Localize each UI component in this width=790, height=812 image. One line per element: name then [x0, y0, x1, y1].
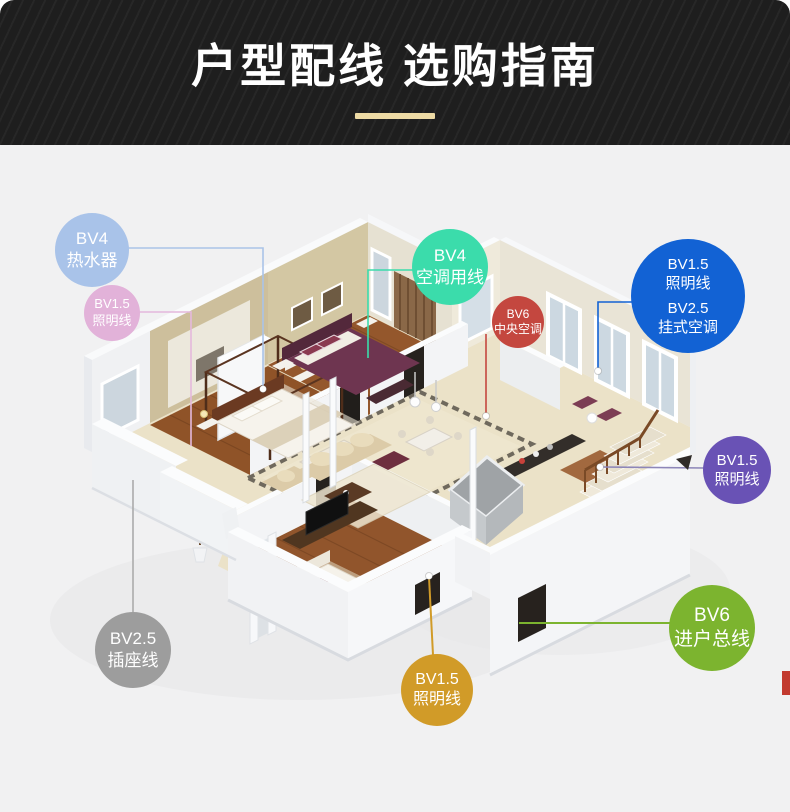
- wire-spec: BV6: [694, 604, 730, 628]
- wire-use-label: 插座线: [108, 650, 159, 672]
- badge-water-heater: BV4 热水器: [55, 213, 129, 287]
- badge-lighting-left: BV1.5 照明线: [84, 285, 140, 341]
- wire-use-label: 热水器: [67, 250, 118, 272]
- badge-wall-ac-combo: BV1.5 照明线 BV2.5 挂式空调: [631, 239, 745, 353]
- wire-use-label: 进户总线: [674, 628, 750, 652]
- wire-spec: BV1.5: [415, 670, 459, 690]
- badge-main-incoming: BV6 进户总线: [669, 585, 755, 671]
- wire-spec: BV2.5: [110, 628, 156, 650]
- wire-spec: BV1.5: [717, 451, 758, 470]
- infographic-page: 户型配线 选购指南: [0, 0, 790, 812]
- wire-spec: BV4: [434, 245, 466, 267]
- wire-spec: BV1.5: [94, 296, 129, 313]
- wire-use-label: 照明线: [92, 313, 131, 330]
- badge-lighting-bottom: BV1.5 照明线: [401, 654, 473, 726]
- edge-red-sliver: [782, 671, 790, 695]
- badge-ac-line: BV4 空调用线: [412, 229, 488, 305]
- floor-plan-3d-render: [0, 0, 790, 812]
- badge-central-ac: BV6 中央空调: [492, 296, 544, 348]
- wire-use-label: 空调用线: [416, 267, 484, 289]
- badge-socket-line: BV2.5 插座线: [95, 612, 171, 688]
- wire-use-label: 照明线: [714, 470, 759, 489]
- wire-use-label: 中央空调: [494, 322, 542, 337]
- badge-lighting-right: BV1.5 照明线: [703, 436, 771, 504]
- wire-use-label: 挂式空调: [658, 318, 718, 337]
- wire-use-label: 照明线: [665, 274, 710, 293]
- wire-spec: BV6: [507, 307, 530, 322]
- wire-use-label: 照明线: [413, 690, 461, 710]
- wire-spec: BV2.5: [668, 299, 709, 318]
- wire-spec: BV4: [76, 228, 108, 250]
- wire-spec: BV1.5: [668, 255, 709, 274]
